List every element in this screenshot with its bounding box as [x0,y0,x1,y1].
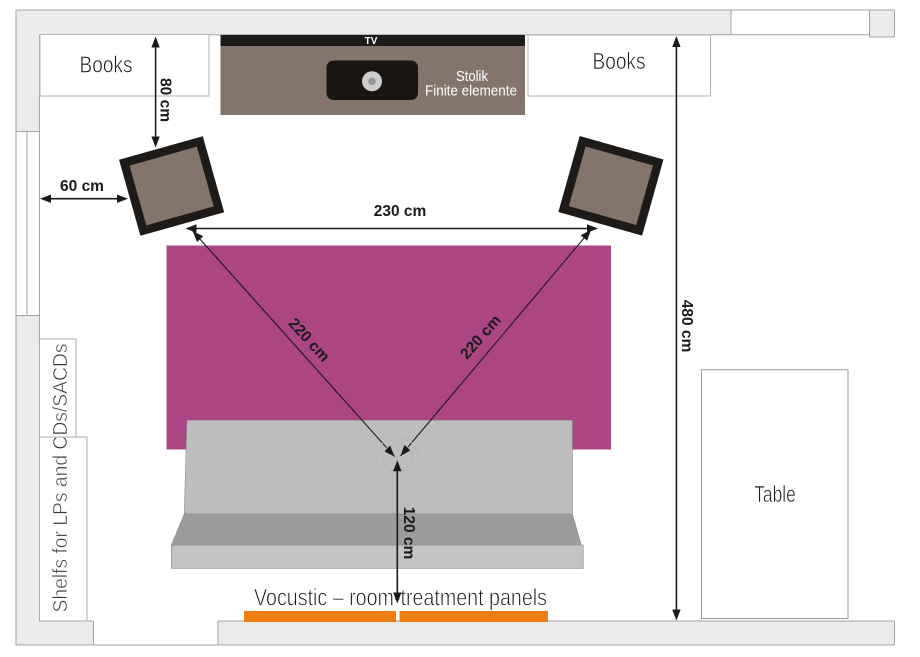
svg-text:60 cm: 60 cm [60,178,104,195]
svg-text:230 cm: 230 cm [374,203,427,220]
svg-text:Books: Books [593,48,646,74]
svg-text:Vocustic – room-treatment pane: Vocustic – room-treatment panels [254,585,547,612]
svg-text:TV: TV [365,36,378,47]
svg-text:80 cm: 80 cm [157,78,174,122]
svg-text:Table: Table [754,481,796,507]
svg-text:120 cm: 120 cm [400,507,417,560]
svg-text:Finite elemente: Finite elemente [425,83,517,100]
svg-text:480 cm: 480 cm [678,300,695,353]
svg-text:Books: Books [80,52,133,78]
svg-text:Shelfs for LPs and CDs/SACDs: Shelfs for LPs and CDs/SACDs [50,344,72,613]
